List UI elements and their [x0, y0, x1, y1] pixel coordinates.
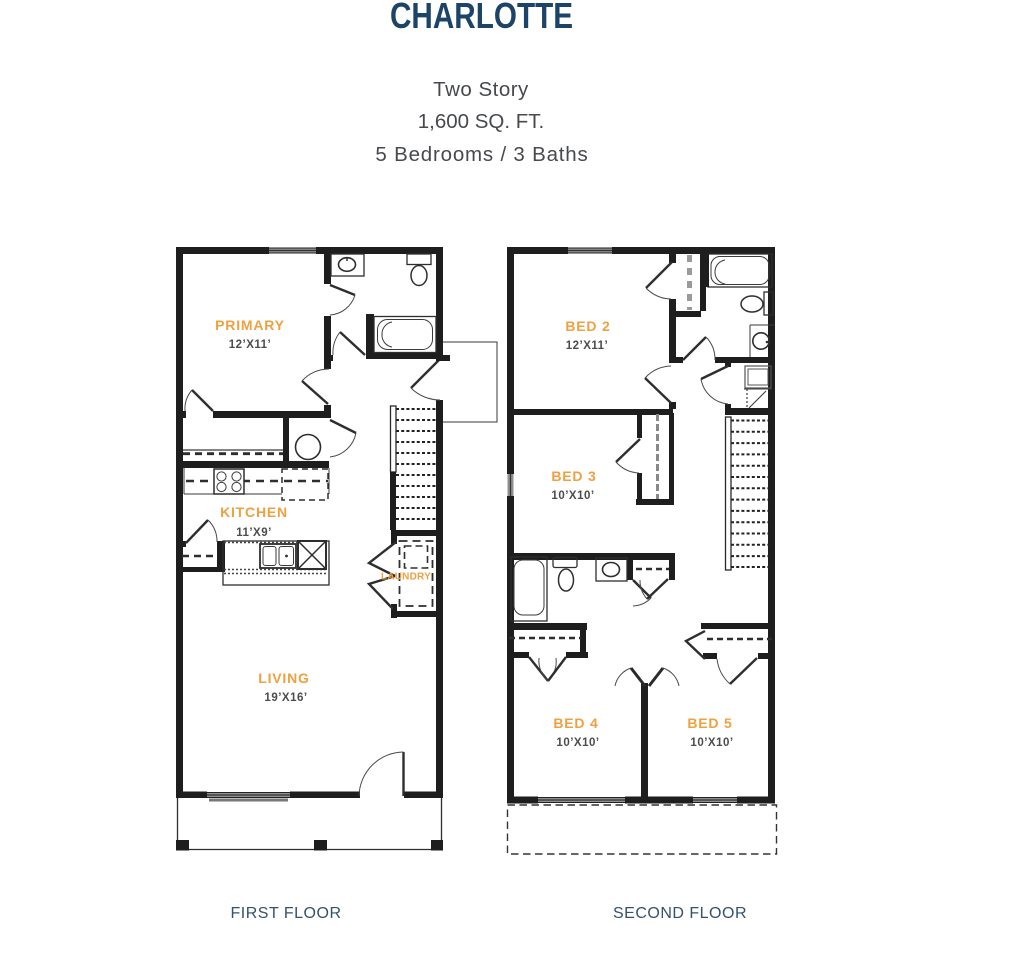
svg-text:LIVING: LIVING — [258, 670, 309, 686]
svg-text:10’X10’: 10’X10’ — [556, 737, 599, 749]
svg-text:5 Bedrooms / 3 Baths: 5 Bedrooms / 3 Baths — [375, 143, 588, 166]
svg-text:12’X11’: 12’X11’ — [229, 339, 272, 351]
svg-text:1,600 SQ. FT.: 1,600 SQ. FT. — [418, 110, 544, 133]
svg-text:BED 3: BED 3 — [551, 468, 596, 484]
svg-text:BED 4: BED 4 — [553, 715, 598, 731]
svg-text:Two Story: Two Story — [433, 78, 529, 101]
svg-text:10’X10’: 10’X10’ — [551, 490, 594, 502]
svg-text:12’X11’: 12’X11’ — [566, 340, 609, 352]
svg-text:19’X16’: 19’X16’ — [264, 692, 307, 704]
svg-text:LAUNDRY: LAUNDRY — [381, 572, 431, 583]
svg-text:CHARLOTTE: CHARLOTTE — [390, 0, 573, 36]
svg-text:SECOND FLOOR: SECOND FLOOR — [613, 905, 747, 922]
svg-text:PRIMARY: PRIMARY — [215, 317, 285, 333]
svg-text:10’X10’: 10’X10’ — [690, 737, 733, 749]
svg-text:FIRST FLOOR: FIRST FLOOR — [231, 905, 342, 922]
svg-text:BED 2: BED 2 — [565, 318, 610, 334]
svg-text:11’X9’: 11’X9’ — [236, 527, 272, 539]
svg-text:BED 5: BED 5 — [687, 715, 732, 731]
svg-text:KITCHEN: KITCHEN — [220, 504, 288, 520]
